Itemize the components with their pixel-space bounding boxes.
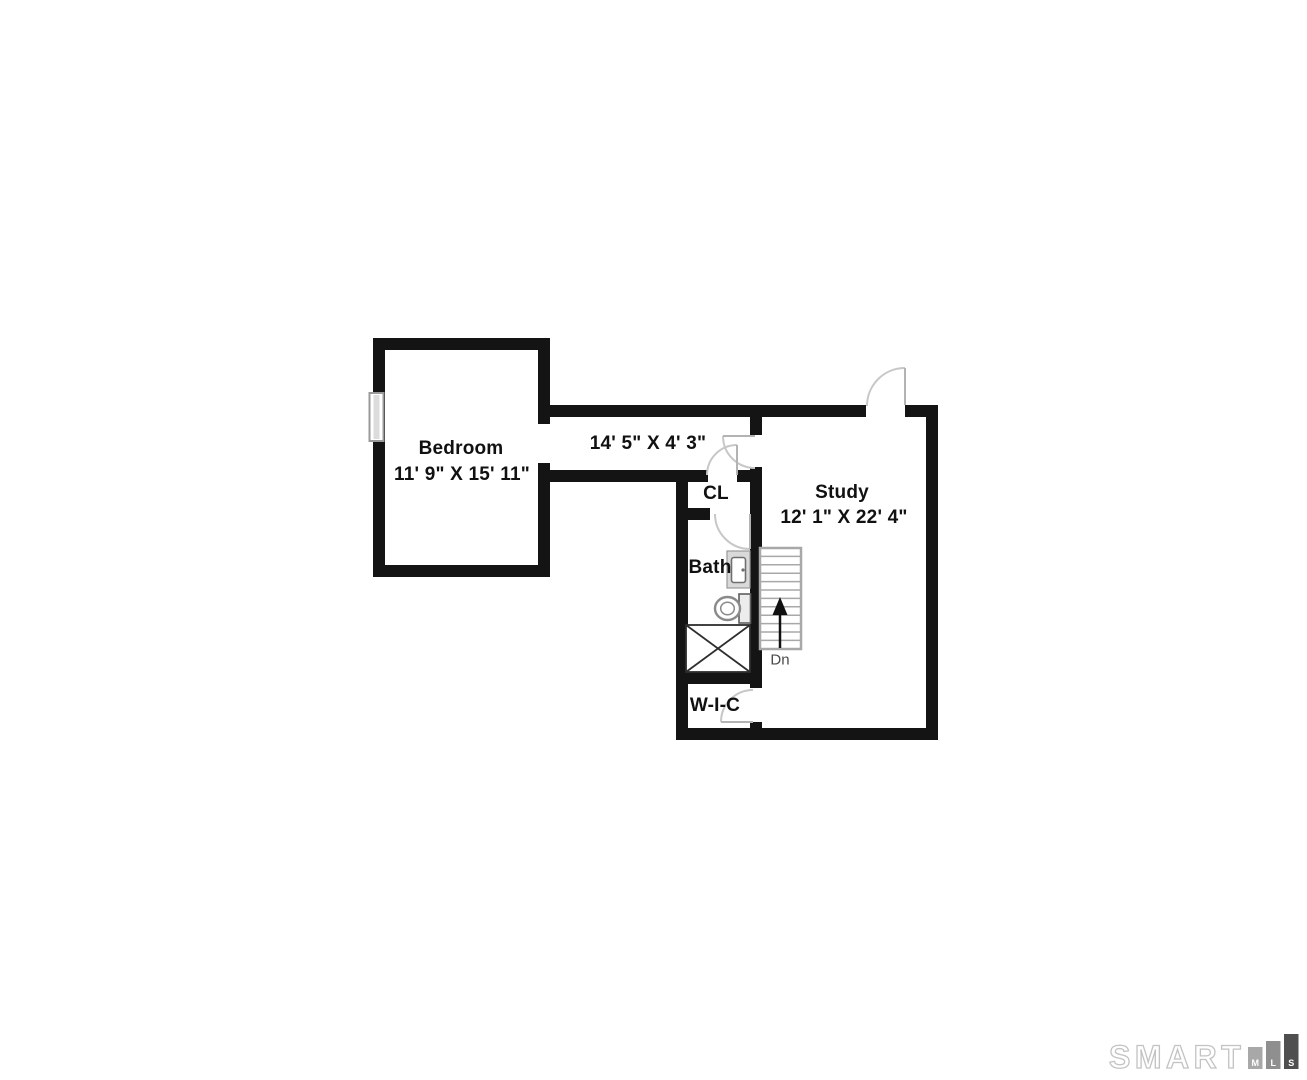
smart-mls-logo: SMART M L S [1108,1033,1307,1078]
wall [750,722,762,740]
logo-bar-m-letter: M [1251,1058,1259,1068]
wall [676,508,710,520]
logo-bars: M L S [1248,1034,1299,1069]
wic-label: W-I-C [690,695,740,717]
wall [676,728,938,740]
wall [676,672,760,684]
floorplan-drawing [0,0,1307,1080]
wall [373,338,550,350]
wall [538,405,866,417]
logo-bar-s-letter: S [1288,1058,1294,1068]
bedroom-dimensions: 11' 9" X 15' 11" [394,464,530,486]
shower-icon [686,625,750,672]
wall [926,405,938,740]
bath-label: Bath [688,557,731,579]
door-arc-vestibule [723,436,755,468]
hallway-dimensions: 14' 5" X 4' 3" [590,433,706,455]
door-arc-study [867,368,905,406]
wall [750,405,762,435]
floorplan-page: { "floorplan": { "title": "Second floor … [0,0,1307,1080]
logo-brand-text: SMART [1109,1039,1245,1075]
walls [373,338,938,740]
toilet-icon [715,594,751,623]
study-dimensions: 12' 1" X 22' 4" [780,507,907,529]
bedroom-label: Bedroom [419,438,504,460]
logo-bar-l-letter: L [1270,1058,1276,1068]
study-label: Study [815,482,869,504]
wall [373,565,550,577]
door-arc-bath [715,514,750,549]
stairs-down-label: Dn [770,652,789,669]
wall [373,338,385,577]
closet-label: CL [703,483,729,505]
wall [737,470,750,482]
